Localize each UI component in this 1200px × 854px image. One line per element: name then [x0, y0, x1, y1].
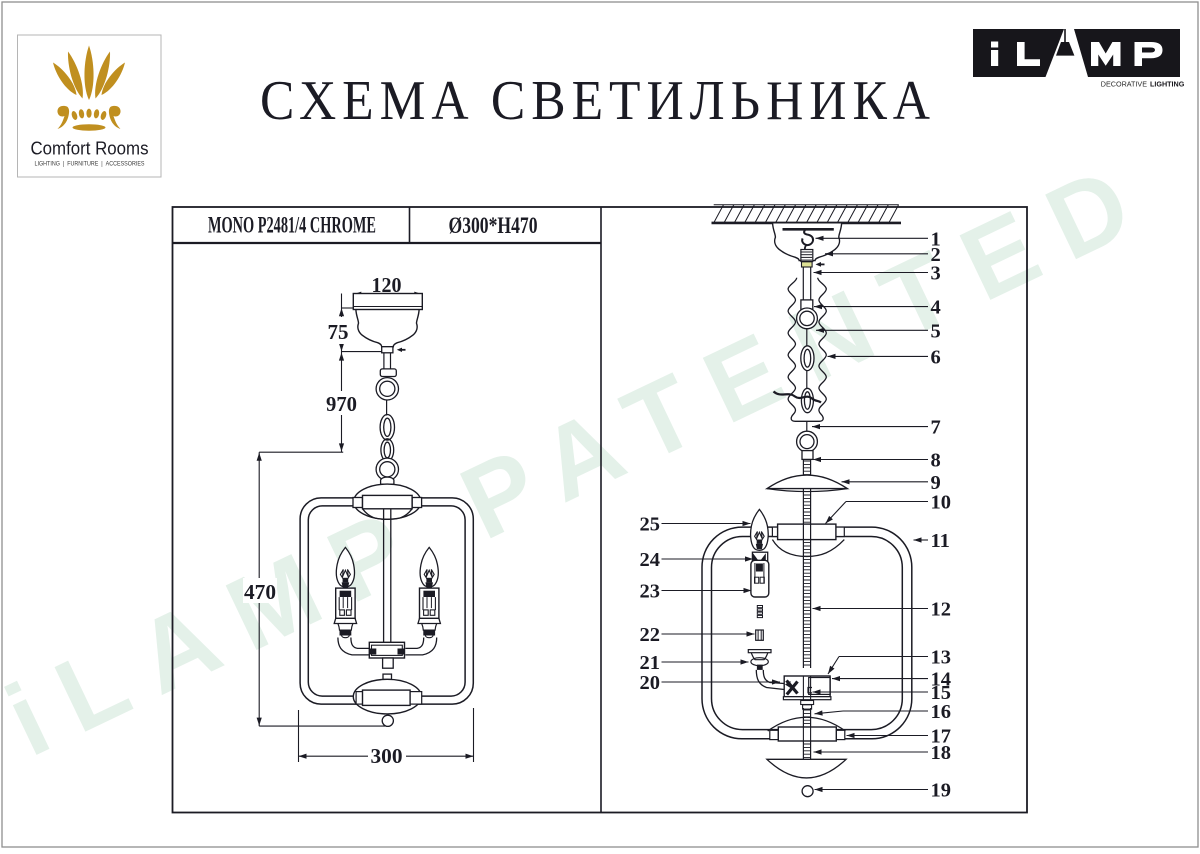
svg-text:7: 7: [931, 417, 941, 439]
svg-text:9: 9: [931, 472, 941, 494]
svg-text:970: 970: [326, 392, 357, 416]
svg-text:3: 3: [931, 263, 941, 285]
svg-text:75: 75: [328, 320, 349, 344]
svg-text:12: 12: [931, 599, 952, 621]
svg-text:25: 25: [640, 514, 661, 536]
svg-text:11: 11: [931, 530, 950, 552]
svg-text:8: 8: [931, 450, 941, 472]
svg-text:22: 22: [640, 624, 661, 646]
svg-text:13: 13: [931, 647, 952, 669]
svg-text:MONO P2481/4 CHROME: MONO P2481/4 CHROME: [208, 212, 376, 237]
svg-text:23: 23: [640, 581, 661, 603]
svg-text:20: 20: [640, 672, 661, 694]
svg-text:DECORATIVE: DECORATIVE: [1101, 79, 1147, 88]
svg-text:6: 6: [931, 346, 941, 368]
svg-text:19: 19: [931, 780, 952, 802]
svg-text:10: 10: [931, 492, 952, 514]
svg-text:5: 5: [931, 320, 941, 342]
svg-text:21: 21: [640, 652, 661, 674]
svg-text:Ø300*H470: Ø300*H470: [449, 213, 538, 238]
svg-text:LIGHTING: LIGHTING: [1150, 79, 1185, 88]
svg-text:LIGHTING | FURNITURE | ACC: LIGHTING | FURNITURE | ACCESSORIES: [35, 162, 145, 168]
svg-text:300: 300: [371, 744, 403, 768]
svg-text:470: 470: [244, 580, 276, 604]
svg-text:СХЕМА СВЕТИЛЬНИКА: СХЕМА СВЕТИЛЬНИКА: [260, 70, 936, 132]
svg-text:4: 4: [931, 297, 941, 319]
svg-text:Comfort Rooms: Comfort Rooms: [31, 138, 149, 159]
svg-text:18: 18: [931, 742, 952, 764]
svg-text:16: 16: [931, 701, 952, 723]
svg-text:24: 24: [640, 549, 661, 571]
